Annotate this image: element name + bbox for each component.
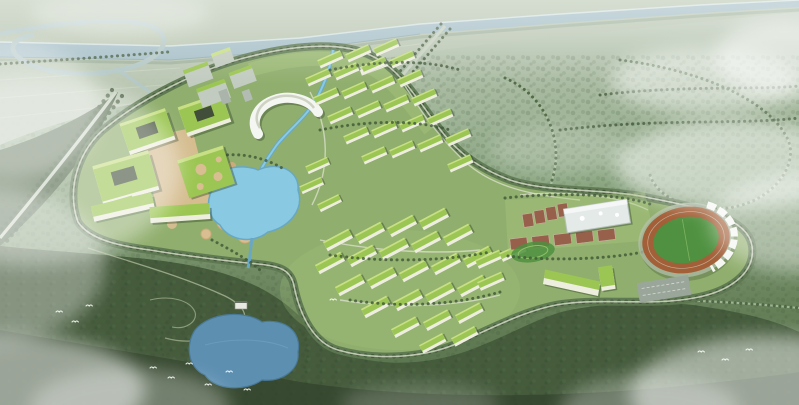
campus-masterplan-rendering: Surrounding forest Hazy farm fields Surr… [0, 0, 799, 405]
aerial-rendering: Surrounding forest Hazy farm fields Surr… [0, 0, 799, 405]
lake-pavilion [235, 301, 247, 309]
